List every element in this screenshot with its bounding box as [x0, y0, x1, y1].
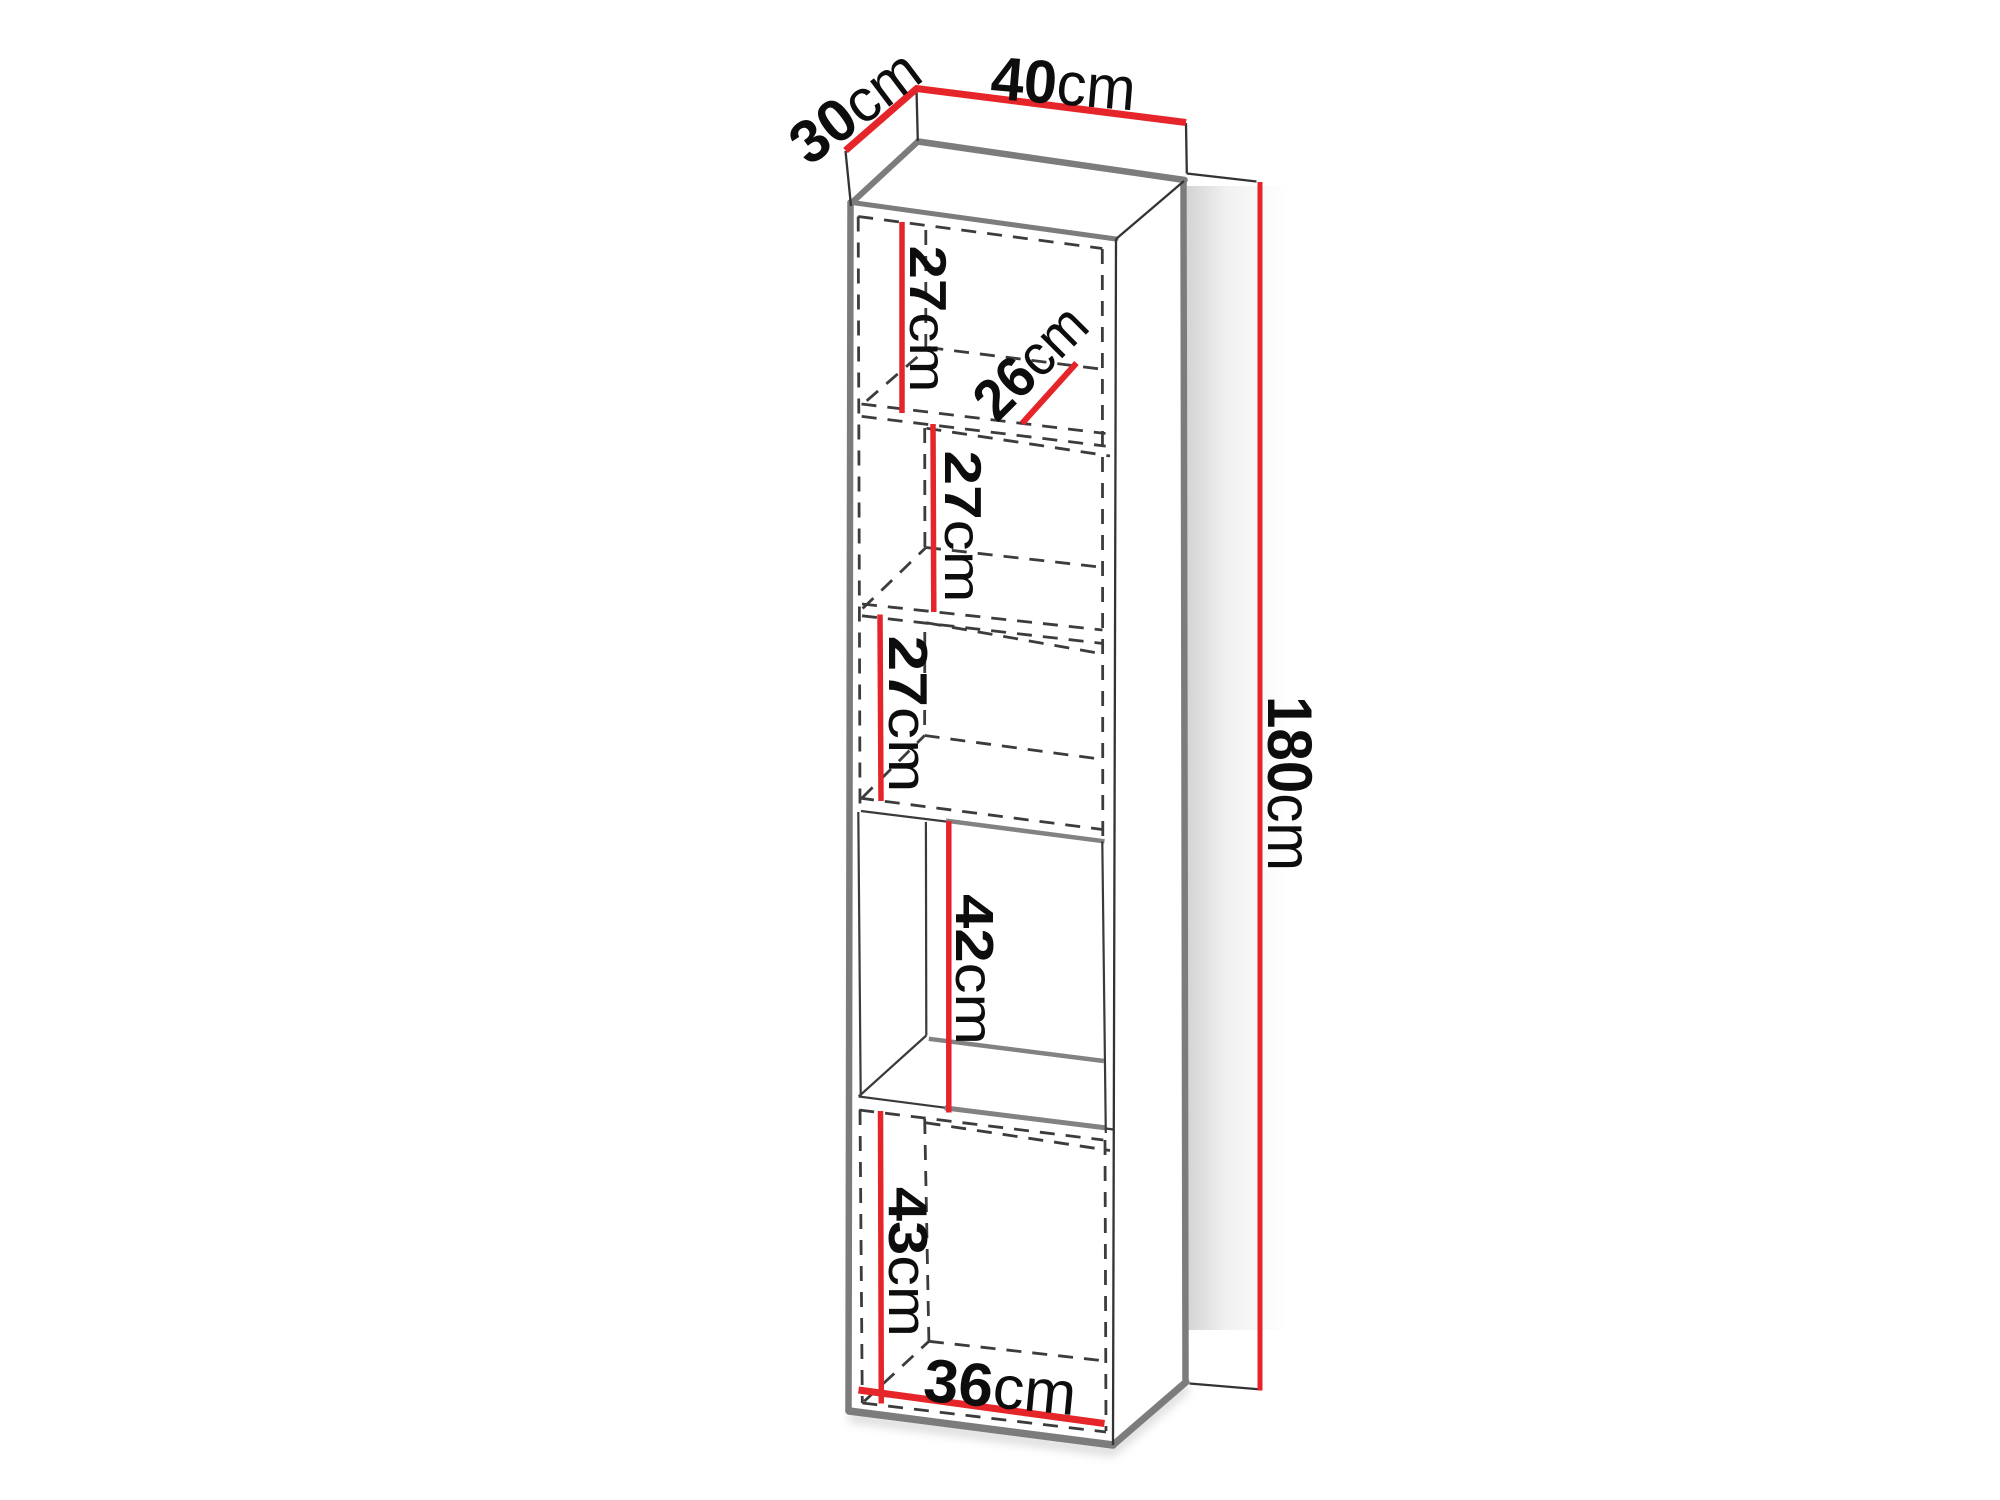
- svg-text:42cm: 42cm: [944, 894, 1004, 1045]
- svg-text:27cm: 27cm: [898, 246, 956, 393]
- svg-text:27cm: 27cm: [933, 451, 991, 603]
- svg-text:43cm: 43cm: [877, 1187, 939, 1337]
- svg-text:40cm: 40cm: [988, 44, 1138, 124]
- svg-text:27cm: 27cm: [877, 636, 939, 793]
- svg-text:180cm: 180cm: [1254, 696, 1324, 871]
